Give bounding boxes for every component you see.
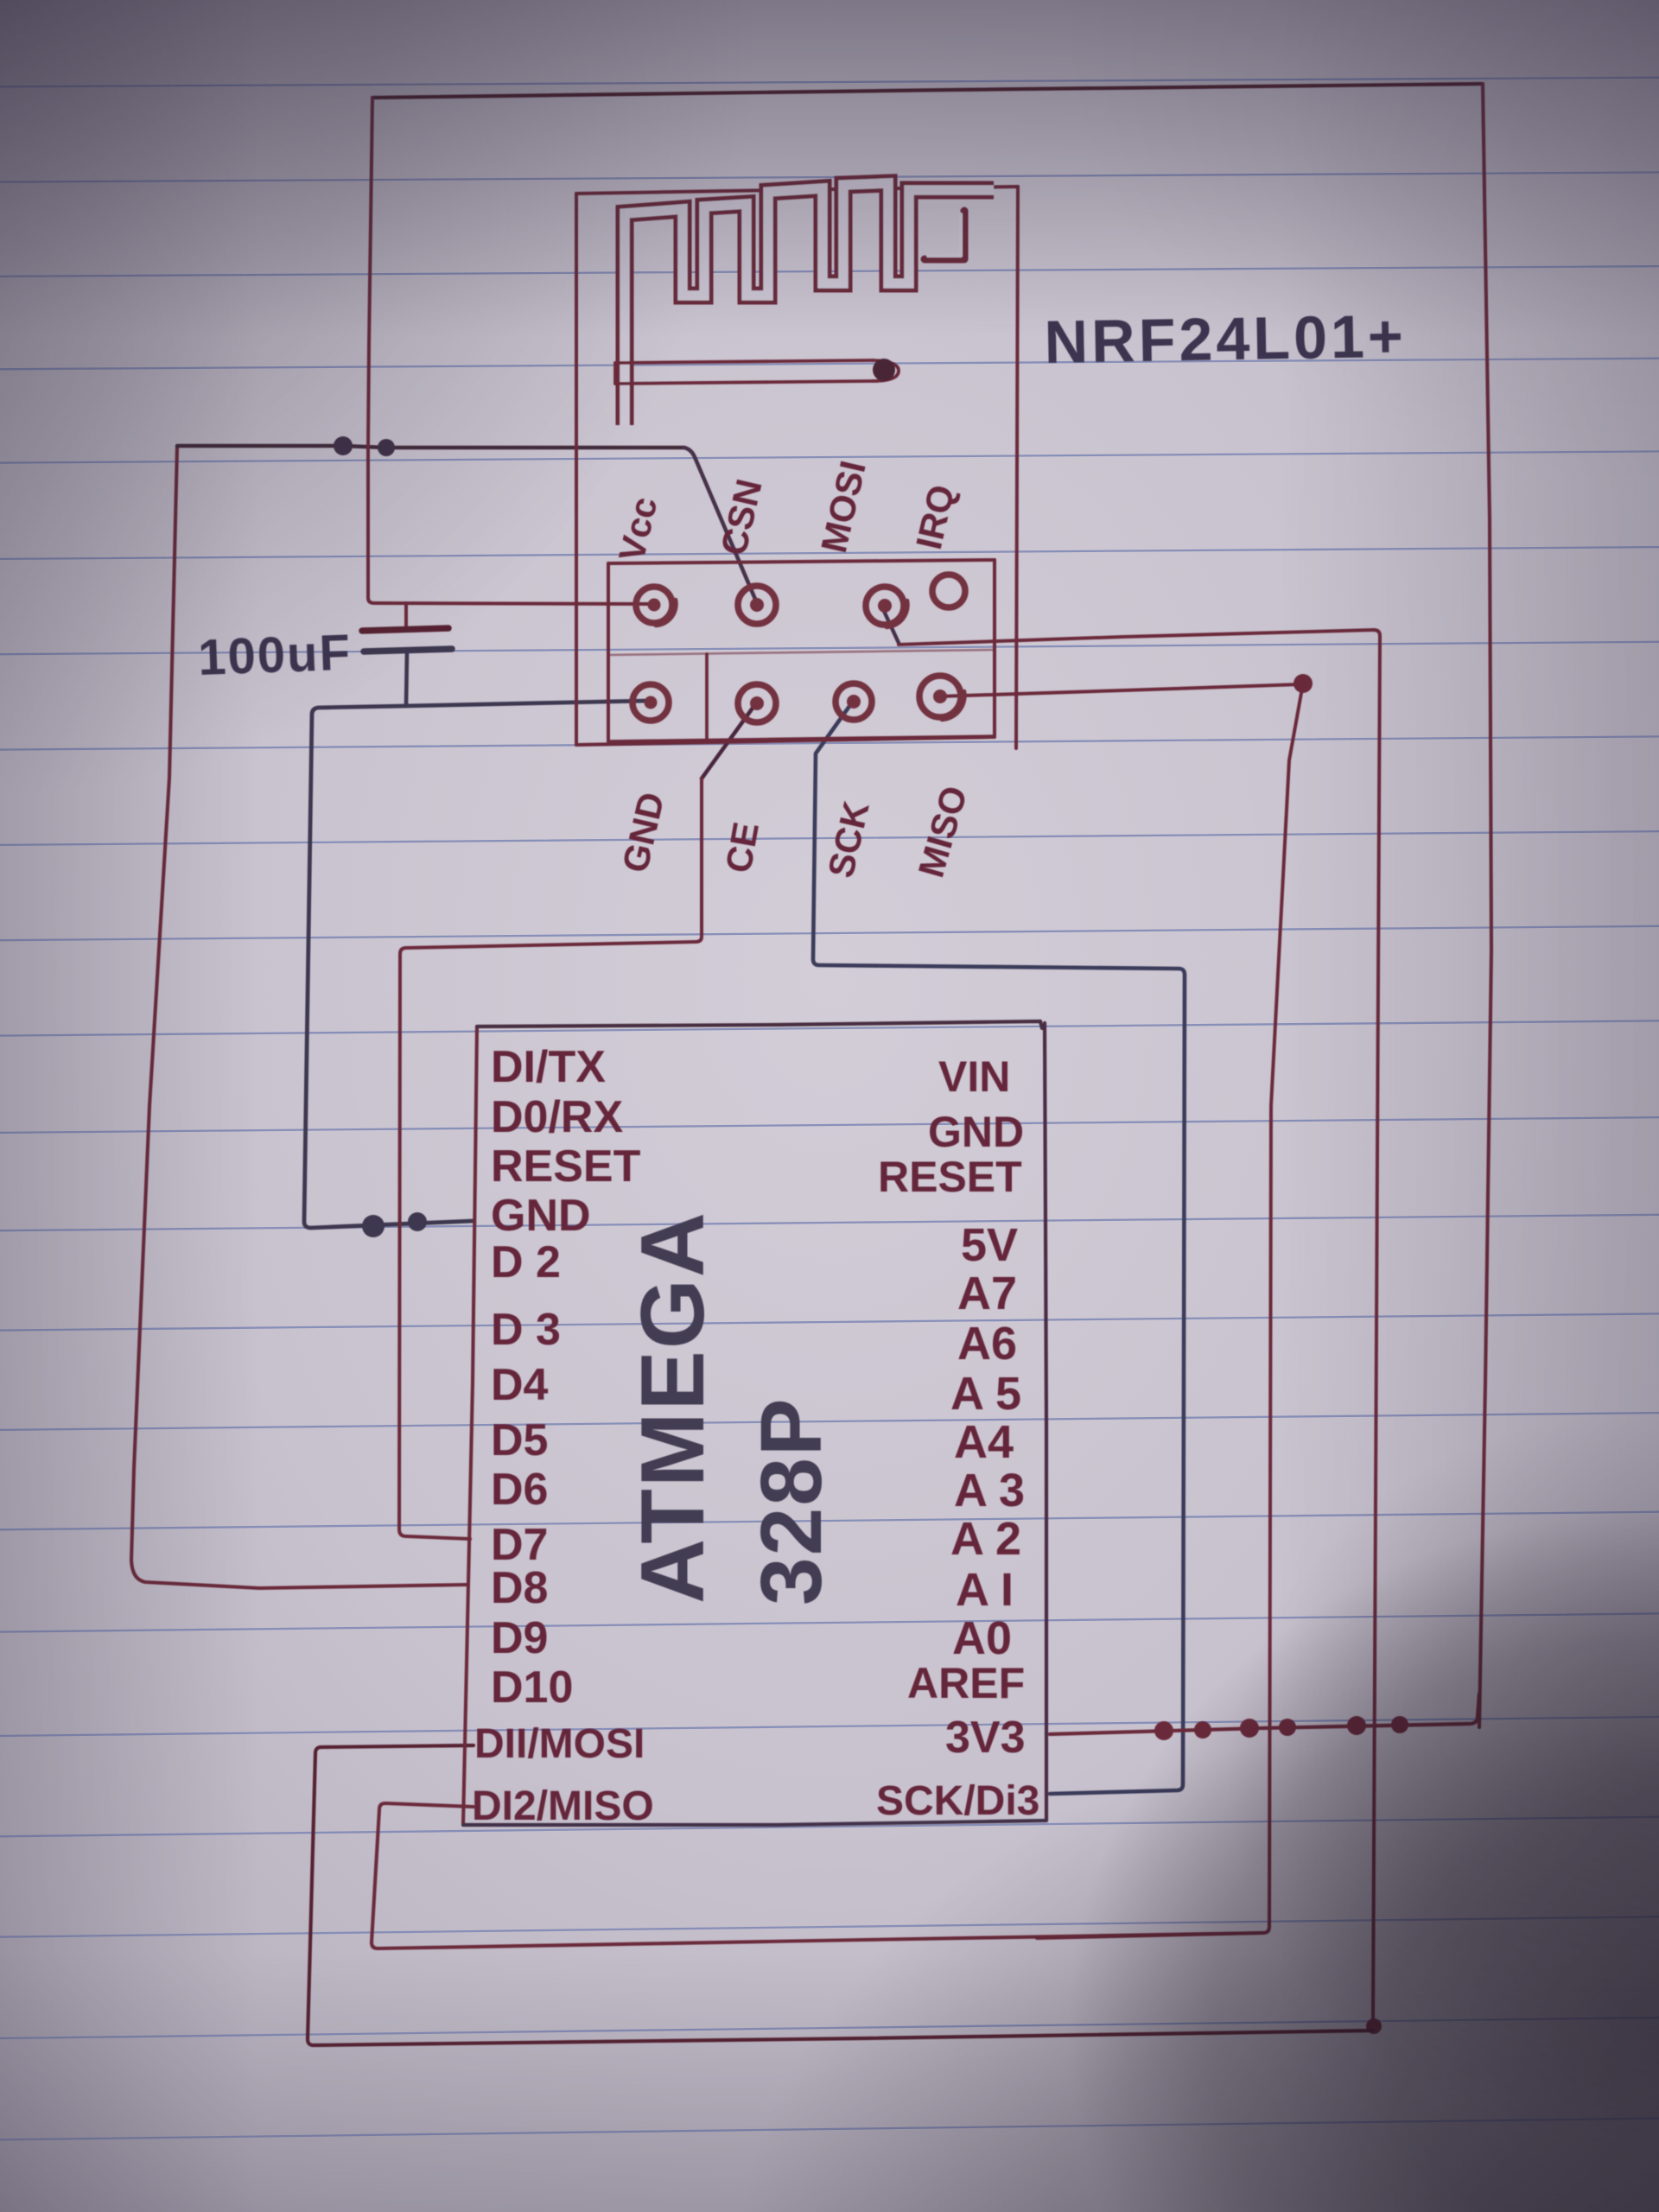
svg-text:RESET: RESET xyxy=(878,1153,1022,1201)
svg-text:DI2/MISO: DI2/MISO xyxy=(472,1783,654,1829)
svg-text:3V3: 3V3 xyxy=(945,1713,1026,1763)
svg-text:DII/MOSI: DII/MOSI xyxy=(474,1721,645,1767)
svg-text:D0/RX: D0/RX xyxy=(491,1092,623,1142)
svg-text:D6: D6 xyxy=(491,1465,548,1515)
svg-text:ATMEGA: ATMEGA xyxy=(623,1211,723,1604)
svg-text:D10: D10 xyxy=(491,1662,573,1713)
svg-text:D8: D8 xyxy=(491,1563,548,1613)
svg-text:GND: GND xyxy=(928,1108,1024,1156)
svg-text:GND: GND xyxy=(491,1191,591,1241)
svg-text:D 2: D 2 xyxy=(491,1237,561,1287)
svg-text:A0: A0 xyxy=(952,1612,1012,1664)
svg-text:D9: D9 xyxy=(491,1613,548,1663)
svg-text:A I: A I xyxy=(956,1564,1014,1616)
svg-text:RESET: RESET xyxy=(491,1141,641,1192)
svg-text:DI/TX: DI/TX xyxy=(491,1042,606,1092)
svg-text:AREF: AREF xyxy=(907,1659,1025,1707)
svg-text:CE: CE xyxy=(718,819,766,876)
svg-text:328P: 328P xyxy=(743,1396,840,1605)
svg-text:A 3: A 3 xyxy=(954,1465,1025,1516)
svg-text:SCK/Di3: SCK/Di3 xyxy=(876,1778,1039,1824)
svg-text:D5: D5 xyxy=(491,1415,548,1465)
svg-text:A 2: A 2 xyxy=(950,1513,1021,1565)
svg-text:D4: D4 xyxy=(491,1360,549,1410)
svg-text:A6: A6 xyxy=(957,1318,1017,1370)
svg-text:A 5: A 5 xyxy=(950,1368,1021,1420)
svg-text:VIN: VIN xyxy=(938,1052,1010,1101)
svg-text:5V: 5V xyxy=(961,1219,1018,1271)
svg-text:D 3: D 3 xyxy=(491,1305,561,1355)
svg-text:A7: A7 xyxy=(957,1268,1017,1319)
svg-text:A4: A4 xyxy=(954,1416,1014,1468)
